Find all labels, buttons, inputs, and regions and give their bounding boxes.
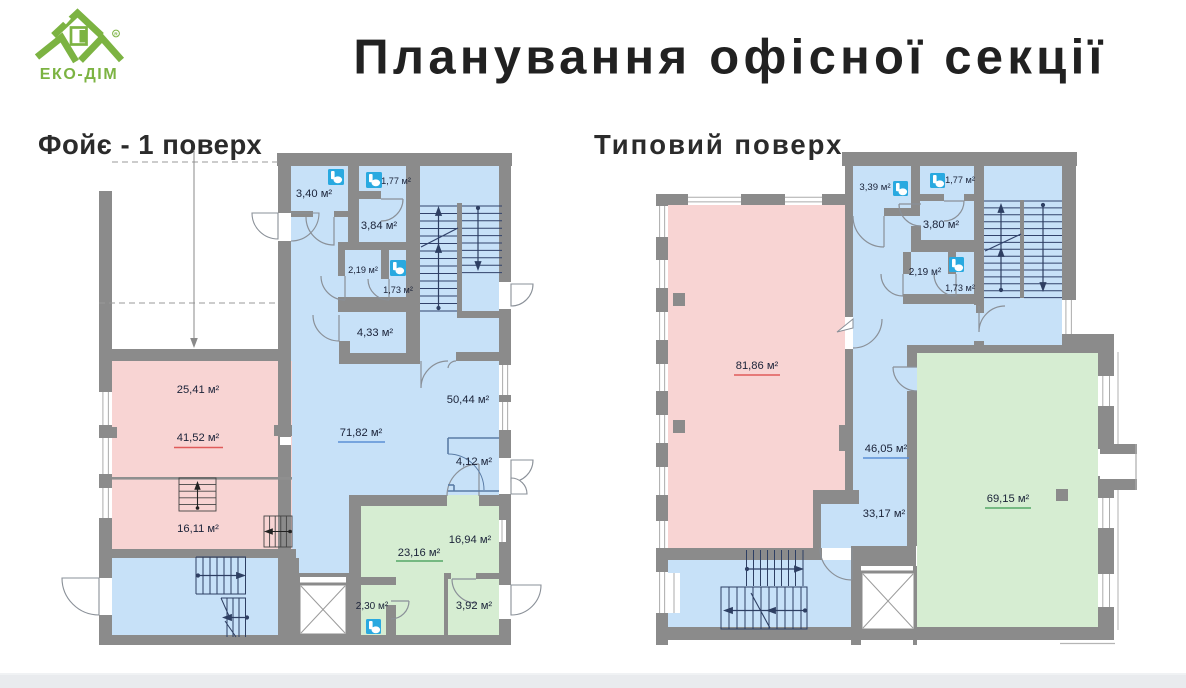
svg-text:Планування офісної секції: Планування офісної секції — [353, 31, 1106, 85]
svg-text:25,41 м²: 25,41 м² — [177, 384, 220, 396]
svg-text:16,94 м²: 16,94 м² — [449, 534, 492, 546]
svg-text:33,17 м²: 33,17 м² — [863, 508, 906, 520]
svg-text:41,52 м²: 41,52 м² — [177, 432, 220, 444]
svg-text:3,92 м²: 3,92 м² — [456, 600, 493, 612]
svg-text:81,86 м²: 81,86 м² — [736, 360, 779, 372]
svg-text:2,19 м²: 2,19 м² — [909, 267, 942, 278]
svg-text:2,19 м²: 2,19 м² — [348, 265, 378, 275]
svg-text:1,77 м²: 1,77 м² — [945, 175, 975, 185]
svg-text:71,82 м²: 71,82 м² — [340, 427, 383, 439]
svg-text:1,73 м²: 1,73 м² — [383, 285, 413, 295]
svg-text:16,11 м²: 16,11 м² — [177, 523, 219, 535]
svg-text:3,40 м²: 3,40 м² — [296, 188, 333, 200]
svg-text:2,30 м²: 2,30 м² — [356, 601, 389, 612]
svg-text:23,16 м²: 23,16 м² — [398, 547, 441, 559]
svg-text:4,33 м²: 4,33 м² — [357, 327, 394, 339]
svg-text:1,77 м²: 1,77 м² — [381, 176, 411, 186]
svg-text:Фойє - 1 поверх: Фойє - 1 поверх — [38, 129, 262, 160]
svg-text:1,73 м²: 1,73 м² — [945, 283, 975, 293]
svg-text:3,84 м²: 3,84 м² — [361, 220, 398, 232]
svg-text:50,44 м²: 50,44 м² — [447, 394, 490, 406]
svg-text:3,39 м²: 3,39 м² — [859, 182, 891, 193]
svg-text:Типовий поверх: Типовий поверх — [594, 129, 843, 160]
svg-text:46,05 м²: 46,05 м² — [865, 443, 908, 455]
svg-text:4,12 м²: 4,12 м² — [456, 456, 493, 468]
svg-text:3,80 м²: 3,80 м² — [923, 219, 960, 231]
svg-text:69,15 м²: 69,15 м² — [987, 493, 1030, 505]
svg-text:ЕКО-ДІМ: ЕКО-ДІМ — [40, 66, 119, 83]
svg-text:R: R — [114, 32, 118, 38]
